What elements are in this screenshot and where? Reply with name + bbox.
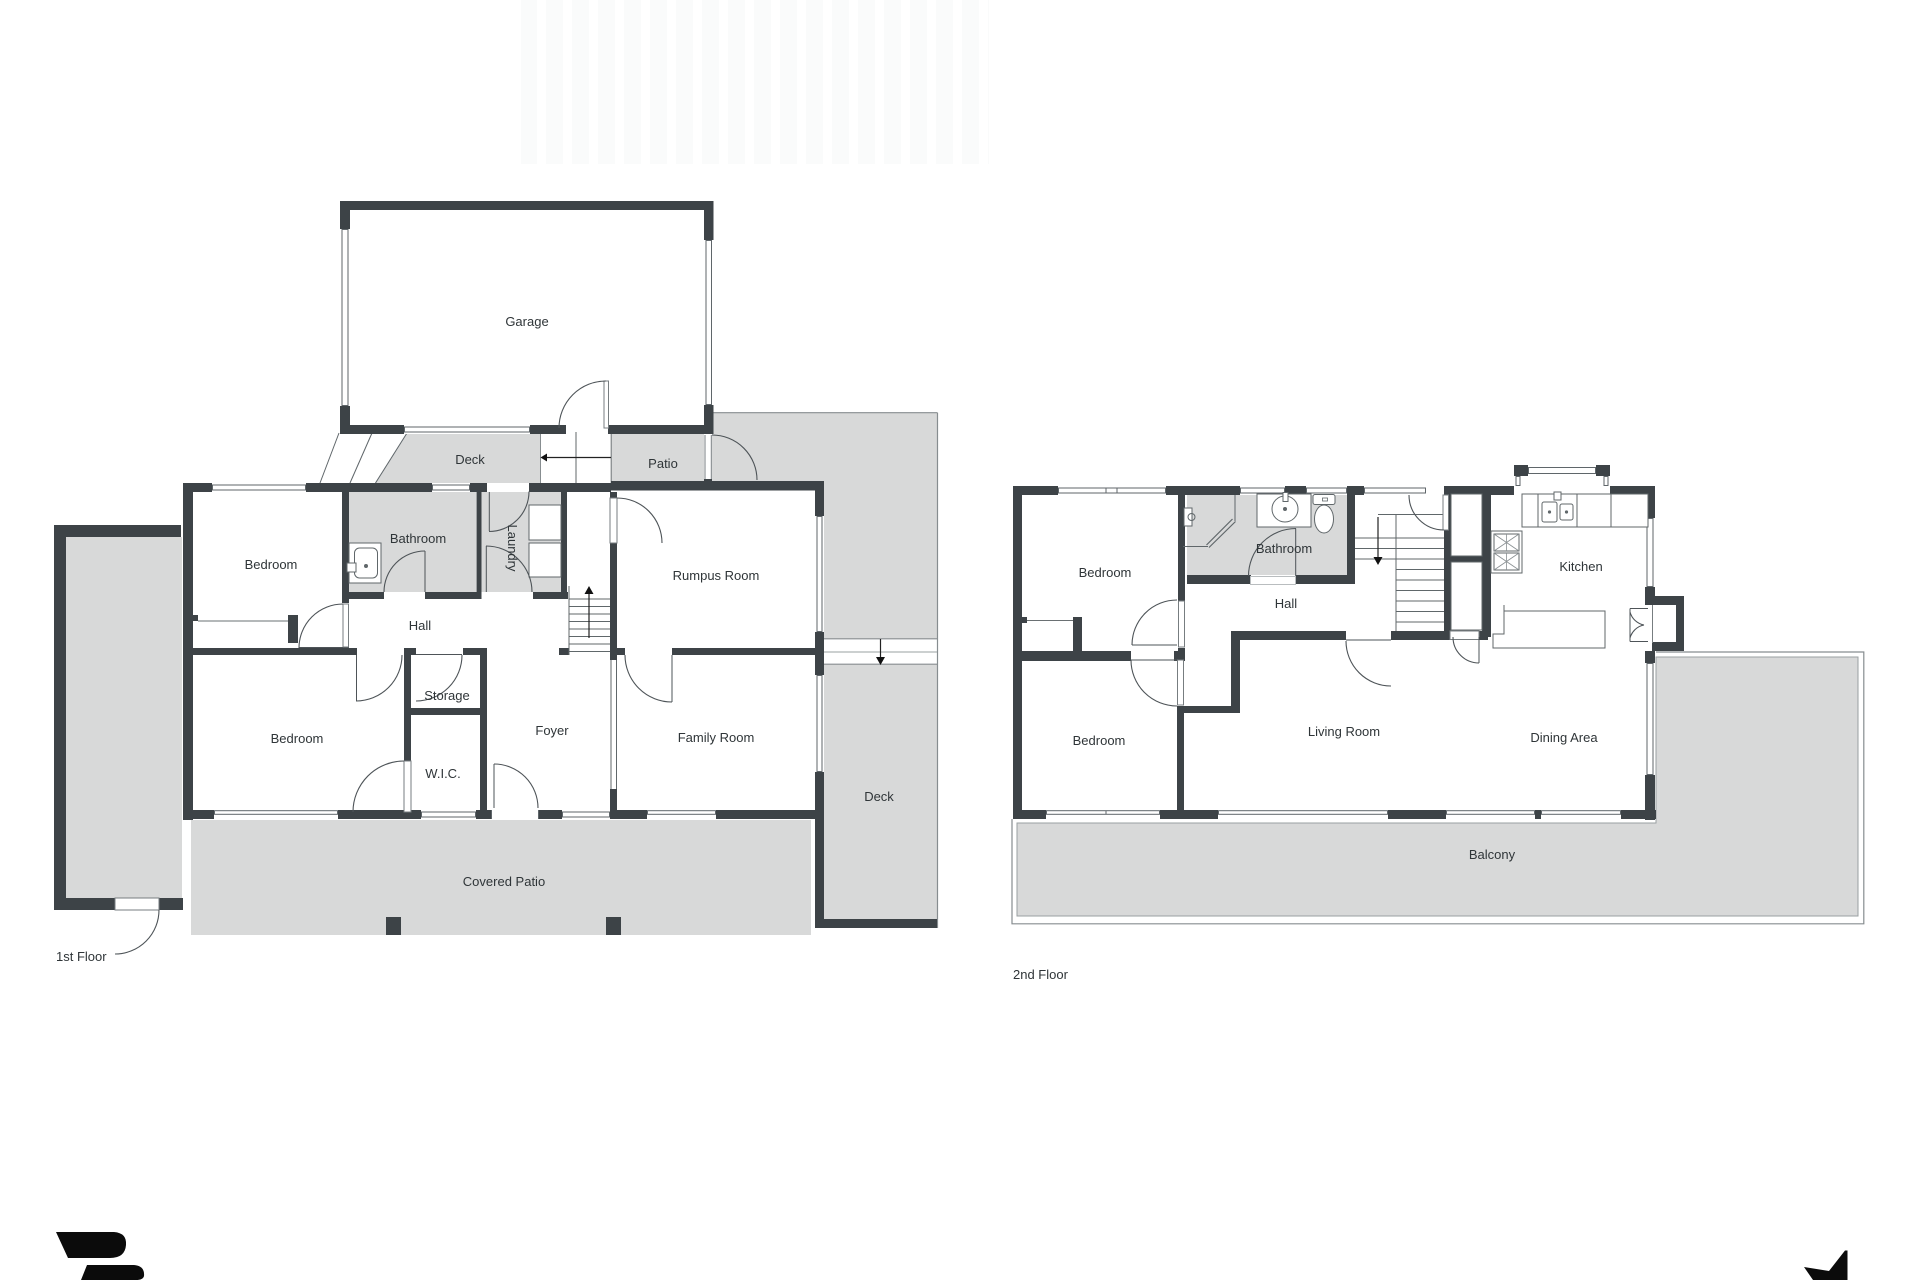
svg-text:Patio: Patio — [648, 456, 678, 471]
svg-text:Bedroom: Bedroom — [1079, 565, 1132, 580]
svg-text:Hall: Hall — [409, 618, 432, 633]
svg-text:Covered Patio: Covered Patio — [463, 874, 545, 889]
svg-text:Rumpus Room: Rumpus Room — [673, 568, 760, 583]
svg-text:Bathroom: Bathroom — [390, 531, 446, 546]
svg-text:2nd Floor: 2nd Floor — [1013, 967, 1069, 982]
svg-text:Dining Area: Dining Area — [1530, 730, 1598, 745]
svg-text:Bedroom: Bedroom — [271, 731, 324, 746]
svg-text:Kitchen: Kitchen — [1559, 559, 1602, 574]
svg-text:Living Room: Living Room — [1308, 724, 1380, 739]
svg-text:Family Room: Family Room — [678, 730, 755, 745]
svg-text:Balcony: Balcony — [1469, 847, 1516, 862]
svg-text:Garage: Garage — [505, 314, 548, 329]
svg-text:Hall: Hall — [1275, 596, 1298, 611]
svg-text:Bedroom: Bedroom — [245, 557, 298, 572]
svg-text:Foyer: Foyer — [535, 723, 569, 738]
svg-text:Deck: Deck — [864, 789, 894, 804]
svg-text:1st Floor: 1st Floor — [56, 949, 107, 964]
svg-text:W.I.C.: W.I.C. — [425, 766, 460, 781]
svg-text:Bedroom: Bedroom — [1073, 733, 1126, 748]
svg-text:Laundry: Laundry — [505, 525, 520, 572]
svg-text:Bathroom: Bathroom — [1256, 541, 1312, 556]
svg-text:Deck: Deck — [455, 452, 485, 467]
svg-text:Storage: Storage — [424, 688, 470, 703]
